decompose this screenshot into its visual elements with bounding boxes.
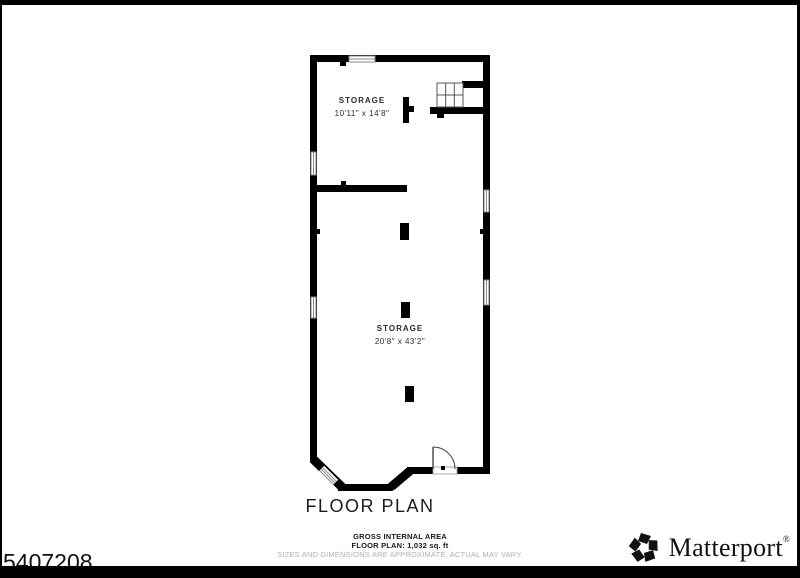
frame-border-left xyxy=(0,0,2,578)
window-top-wall xyxy=(349,56,375,62)
staircase-symbol xyxy=(437,83,463,107)
frame-border-top xyxy=(0,0,800,5)
exterior-walls xyxy=(310,55,490,491)
window-chamfer xyxy=(320,468,337,485)
screenshot-stage: STORAGE 10'11" x 14'8" STORAGE 20'8" x 4… xyxy=(0,0,800,578)
room-1-dimensions: 10'11" x 14'8" xyxy=(335,109,390,118)
column-markers xyxy=(400,223,414,402)
floor-plan-drawing: STORAGE 10'11" x 14'8" STORAGE 20'8" x 4… xyxy=(0,0,800,578)
matterport-pinwheel-icon xyxy=(627,531,661,565)
window-right-upper xyxy=(484,190,489,212)
room-1-name: STORAGE xyxy=(339,96,385,105)
window-left-lower xyxy=(311,297,316,318)
matterport-wordmark-text: Matterport xyxy=(669,533,783,562)
gross-internal-area-label: GROSS INTERNAL AREA xyxy=(200,532,600,541)
floor-plan-area-value: FLOOR PLAN: 1,032 sq. ft xyxy=(200,541,600,550)
floor-plan-title: FLOOR PLAN xyxy=(270,496,470,517)
disclaimer-text: SIZES AND DIMENSIONS ARE APPROXIMATE, AC… xyxy=(200,550,600,559)
matterport-wordmark: Matterport® xyxy=(669,533,790,563)
window-left-upper xyxy=(311,152,316,175)
window-symbols xyxy=(311,56,489,485)
registered-trademark-symbol: ® xyxy=(783,534,790,544)
room-2-name: STORAGE xyxy=(377,324,423,333)
matterport-branding: Matterport® xyxy=(627,528,790,568)
footer-block: GROSS INTERNAL AREA FLOOR PLAN: 1,032 sq… xyxy=(200,532,600,559)
door-symbol xyxy=(433,447,457,474)
window-right-lower xyxy=(484,280,489,305)
room-2-dimensions: 20'8" x 43'2" xyxy=(375,337,425,346)
